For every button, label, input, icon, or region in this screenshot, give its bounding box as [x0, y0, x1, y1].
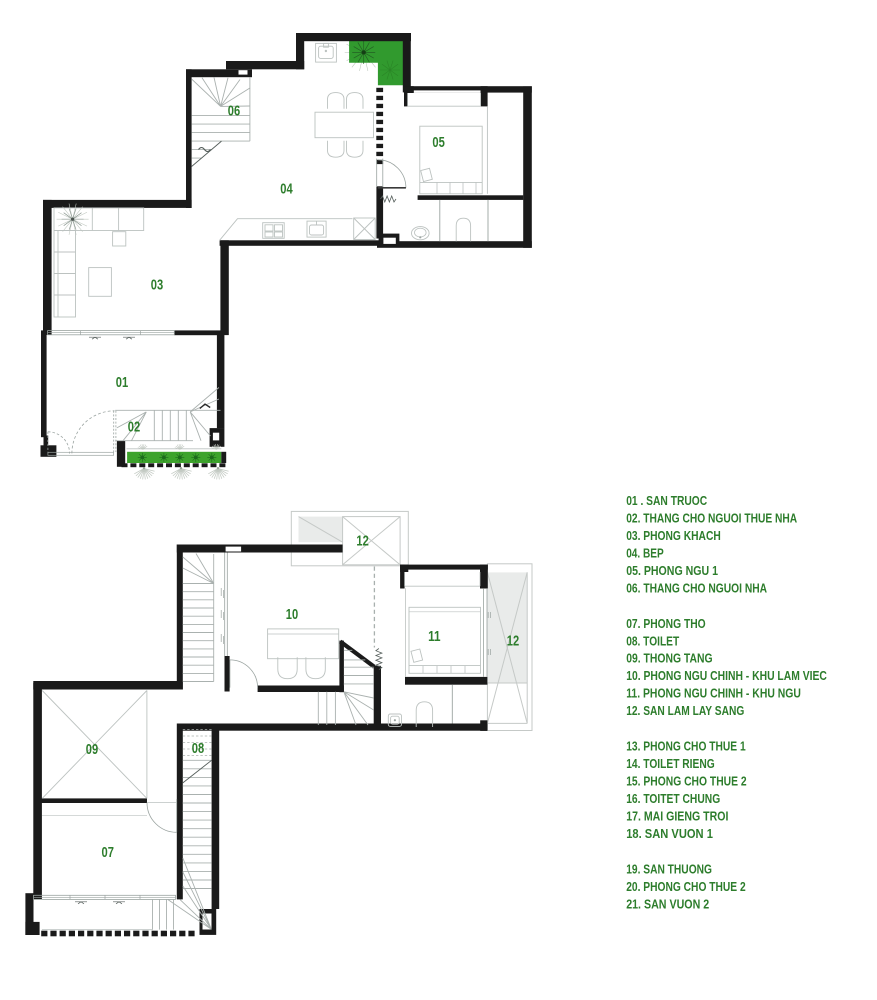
svg-text:11: 11 [428, 629, 440, 645]
svg-text:08. TOILET: 08. TOILET [626, 634, 679, 648]
svg-text:12: 12 [356, 534, 368, 550]
svg-text:18. SAN VUON 1: 18. SAN VUON 1 [626, 827, 713, 841]
svg-text:01: 01 [116, 375, 128, 391]
svg-text:16. TOITET CHUNG: 16. TOITET CHUNG [626, 792, 720, 806]
svg-text:02. THANG CHO NGUOI THUE NHA: 02. THANG CHO NGUOI THUE NHA [626, 511, 797, 525]
svg-text:09: 09 [86, 742, 98, 758]
svg-text:21. SAN VUON 2: 21. SAN VUON 2 [626, 897, 709, 911]
svg-text:02: 02 [128, 420, 140, 436]
svg-text:14. TOILET RIENG: 14. TOILET RIENG [626, 757, 715, 771]
svg-text:12: 12 [507, 634, 519, 650]
svg-text:07: 07 [102, 845, 114, 861]
svg-text:15. PHONG CHO THUE 2: 15. PHONG CHO THUE 2 [626, 775, 746, 789]
svg-text:19. SAN THUONG: 19. SAN THUONG [626, 862, 712, 876]
svg-text:13. PHONG CHO THUE 1: 13. PHONG CHO THUE 1 [626, 740, 746, 754]
svg-text:12. SAN LAM LAY SANG: 12. SAN LAM LAY SANG [626, 704, 744, 718]
svg-text:10: 10 [286, 607, 298, 623]
svg-text:06: 06 [228, 104, 240, 120]
svg-text:05. PHONG NGU 1: 05. PHONG NGU 1 [626, 564, 718, 578]
svg-text:03: 03 [151, 278, 163, 294]
svg-text:11. PHONG NGU CHINH - KHU NGU: 11. PHONG NGU CHINH - KHU NGU [626, 687, 801, 701]
svg-text:06. THANG CHO NGUOI NHA: 06. THANG CHO NGUOI NHA [626, 581, 767, 595]
svg-text:05: 05 [432, 135, 444, 151]
svg-text:04: 04 [280, 182, 293, 198]
svg-text:09. THONG TANG: 09. THONG TANG [626, 652, 713, 666]
svg-text:08: 08 [192, 741, 204, 757]
svg-text:07. PHONG THO: 07. PHONG THO [626, 617, 706, 631]
svg-text:01 . SAN TRUOC: 01 . SAN TRUOC [626, 494, 707, 508]
svg-text:20. PHONG CHO THUE 2: 20. PHONG CHO THUE 2 [626, 880, 746, 894]
svg-text:03. PHONG KHACH: 03. PHONG KHACH [626, 529, 721, 543]
svg-text:04. BEP: 04. BEP [626, 546, 664, 560]
svg-text:17. MAI GIENG TROI: 17. MAI GIENG TROI [626, 809, 728, 823]
svg-text:10. PHONG NGU CHINH - KHU LAM: 10. PHONG NGU CHINH - KHU LAM VIEC [626, 669, 827, 683]
